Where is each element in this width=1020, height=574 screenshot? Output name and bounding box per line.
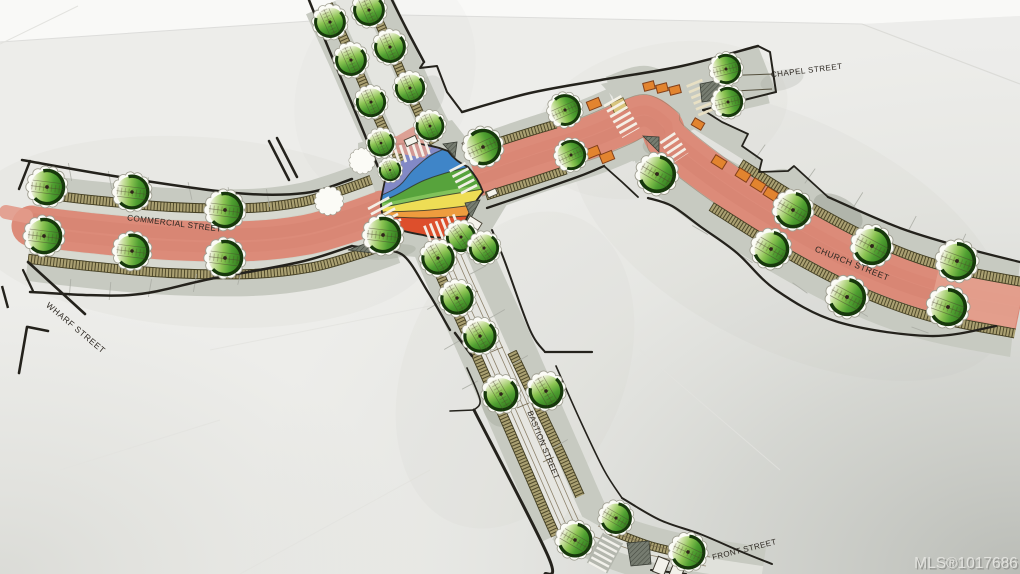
svg-text:MLS®1017686: MLS®1017686 [914,555,1018,572]
